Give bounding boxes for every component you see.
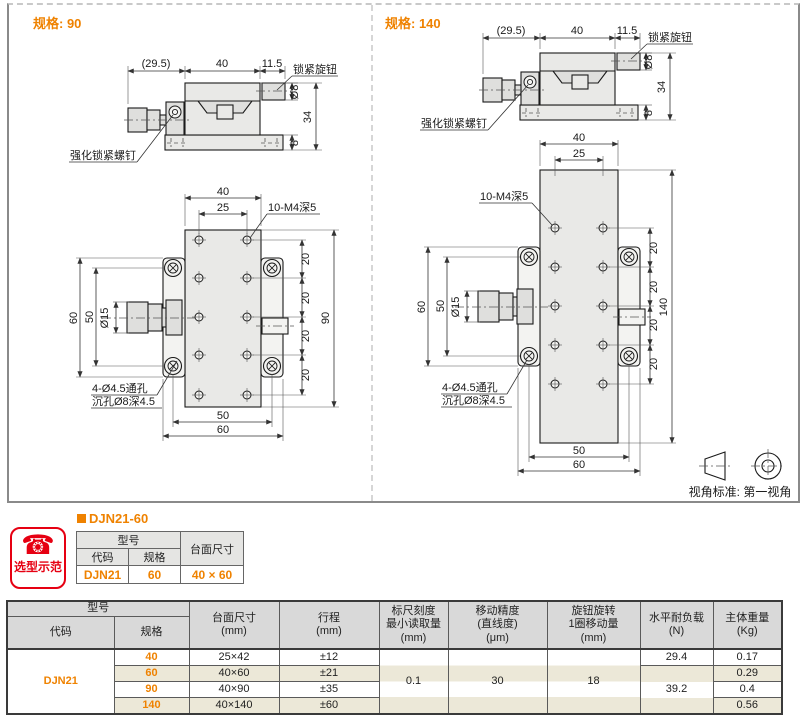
svg-text:锁紧旋钮: 锁紧旋钮 — [648, 30, 692, 44]
header-weight: 主体重量 (Kg) — [713, 601, 782, 649]
svg-text:强化锁紧螺钉: 强化锁紧螺钉 — [421, 116, 487, 130]
phone-icon: ☎ — [12, 529, 64, 561]
side-view-drawing: (29.5) 40 11.5 Ø8 34 8 锁紧旋钮 强化锁紧螺钉 — [420, 25, 693, 130]
cell-knob-travel: 18 — [547, 649, 640, 714]
mini-header-code: 代码 — [77, 549, 129, 566]
dim-label: 50 — [217, 410, 229, 422]
dim-label: 25 — [217, 202, 229, 214]
cell-scale: 0.1 — [379, 649, 448, 714]
cell-travel: ±35 — [279, 682, 379, 698]
cell-travel: ±12 — [279, 649, 379, 666]
cell-weight: 0.17 — [713, 649, 782, 666]
dim-label: 50 — [573, 445, 585, 457]
cell-size: 25×42 — [189, 649, 279, 666]
cell-load: 39.2 — [640, 666, 713, 715]
mini-value-size: 40 × 60 — [181, 566, 244, 584]
dim-label: 11.5 — [262, 58, 283, 70]
svg-text:沉孔Ø8深4.5: 沉孔Ø8深4.5 — [442, 394, 505, 407]
dim-label: 90 — [320, 312, 332, 324]
dim-label: 8 — [643, 110, 655, 116]
table-row: DJN21 40 25×42 ±12 0.1 30 18 29.4 0.17 — [7, 649, 782, 666]
view-standard-note: 视角标准: 第一视角 — [689, 484, 792, 499]
dim-label: 40 — [573, 132, 585, 144]
dim-label: 20 — [648, 281, 660, 293]
dim-label: 20 — [648, 358, 660, 370]
cell-size: 40×60 — [189, 666, 279, 682]
cell-spec: 90 — [114, 682, 189, 698]
header-knob-travel: 旋钮旋转 1圈移动量 (mm) — [547, 601, 640, 649]
side-view-drawing: (29.5) 40 11.5 Ø8 34 8 锁紧旋钮 强化锁紧螺钉 — [69, 58, 338, 162]
cell-spec: 40 — [114, 649, 189, 666]
dim-label: 34 — [302, 111, 314, 123]
mini-value-spec: 60 — [129, 566, 181, 584]
front-view-drawing: 40 25 60 50 Ø15 20 20 20 20 140 50 60 10… — [416, 132, 676, 476]
catalog-page: 规格: 90 规格: 140 — [0, 0, 808, 720]
header-size: 台面尺寸 (mm) — [189, 601, 279, 649]
cell-size: 40×90 — [189, 682, 279, 698]
lock-knob-callout: 锁紧旋钮 — [277, 62, 338, 90]
drawing-spec-90: (29.5) 40 11.5 Ø8 34 8 锁紧旋钮 强化锁紧螺钉 — [8, 4, 369, 502]
spec-table: 型号 台面尺寸 (mm) 行程 (mm) 标尺刻度 最小读取量 (mm) 移动精… — [6, 600, 783, 715]
drawing-spec-140: (29.5) 40 11.5 Ø8 34 8 锁紧旋钮 强化锁紧螺钉 — [371, 4, 799, 502]
dim-label: 25 — [573, 148, 585, 160]
example-heading-text: DJN21-60 — [89, 511, 148, 526]
header-scale: 标尺刻度 最小读取量 (mm) — [379, 601, 448, 649]
header-travel: 行程 (mm) — [279, 601, 379, 649]
svg-text:4-Ø4.5通孔: 4-Ø4.5通孔 — [442, 381, 498, 394]
front-view-drawing: 40 25 60 50 Ø15 20 20 20 20 90 50 60 10-… — [68, 186, 339, 441]
dim-label: 50 — [435, 300, 447, 312]
selection-example-badge: ☎ 选型示范 — [10, 527, 66, 589]
dim-label: 40 — [571, 25, 583, 37]
svg-text:锁紧旋钮: 锁紧旋钮 — [293, 62, 337, 76]
mini-header-size: 台面尺寸 — [181, 532, 244, 566]
dim-label: 40 — [217, 186, 229, 198]
bullet-square-icon — [77, 514, 86, 523]
mini-header-model: 型号 — [77, 532, 181, 549]
cell-weight: 0.56 — [713, 698, 782, 715]
cell-travel: ±60 — [279, 698, 379, 715]
mini-header-spec: 规格 — [129, 549, 181, 566]
dim-label: 34 — [656, 81, 668, 93]
cell-load: 29.4 — [640, 649, 713, 666]
example-heading: DJN21-60 — [77, 511, 148, 525]
dim-label: 50 — [84, 311, 96, 323]
selection-example-table: 型号 台面尺寸 代码 规格 DJN21 60 40 × 60 — [76, 531, 244, 584]
dim-label: 11.5 — [617, 25, 638, 37]
through-holes-callout: 4-Ø4.5通孔 沉孔Ø8深4.5 — [441, 360, 527, 407]
svg-text:强化锁紧螺钉: 强化锁紧螺钉 — [70, 148, 136, 162]
dim-label: 8 — [289, 140, 301, 146]
svg-text:4-Ø4.5通孔: 4-Ø4.5通孔 — [92, 382, 148, 395]
dim-label: Ø15 — [450, 297, 462, 318]
dim-label: 60 — [573, 459, 585, 471]
dim-label: 20 — [300, 369, 312, 381]
dim-label: 20 — [300, 330, 312, 342]
dim-label: Ø8 — [289, 85, 301, 100]
svg-text:10-M4深5: 10-M4深5 — [268, 201, 316, 214]
cell-size: 40×140 — [189, 698, 279, 715]
mini-value-code: DJN21 — [77, 566, 129, 584]
dim-label: 20 — [648, 319, 660, 331]
header-spec: 规格 — [114, 617, 189, 650]
cell-code: DJN21 — [7, 649, 114, 714]
dim-label: (29.5) — [497, 25, 526, 37]
first-angle-projection-icon — [699, 449, 785, 483]
dim-label: (29.5) — [142, 58, 171, 70]
dim-label: 140 — [658, 298, 670, 316]
cell-spec: 60 — [114, 666, 189, 682]
dim-label: 40 — [216, 58, 228, 70]
dim-label: 20 — [300, 292, 312, 304]
badge-label: 选型示范 — [12, 561, 64, 573]
cell-spec: 140 — [114, 698, 189, 715]
header-load: 水平耐负载 (N) — [640, 601, 713, 649]
dim-label: 60 — [68, 312, 80, 324]
dim-label: 60 — [217, 424, 229, 436]
header-accuracy: 移动精度 (直线度) (μm) — [448, 601, 547, 649]
cell-travel: ±21 — [279, 666, 379, 682]
header-model: 型号 — [7, 601, 189, 617]
cell-weight: 0.4 — [713, 682, 782, 698]
svg-text:10-M4深5: 10-M4深5 — [480, 190, 528, 203]
dim-label: 60 — [416, 301, 428, 313]
cell-accuracy: 30 — [448, 649, 547, 714]
dim-label: 20 — [648, 242, 660, 254]
dim-label: 20 — [300, 253, 312, 265]
cell-weight: 0.29 — [713, 666, 782, 682]
header-code: 代码 — [7, 617, 114, 650]
dim-label: Ø8 — [643, 55, 655, 70]
dim-label: Ø15 — [99, 308, 111, 329]
svg-text:沉孔Ø8深4.5: 沉孔Ø8深4.5 — [92, 395, 155, 408]
